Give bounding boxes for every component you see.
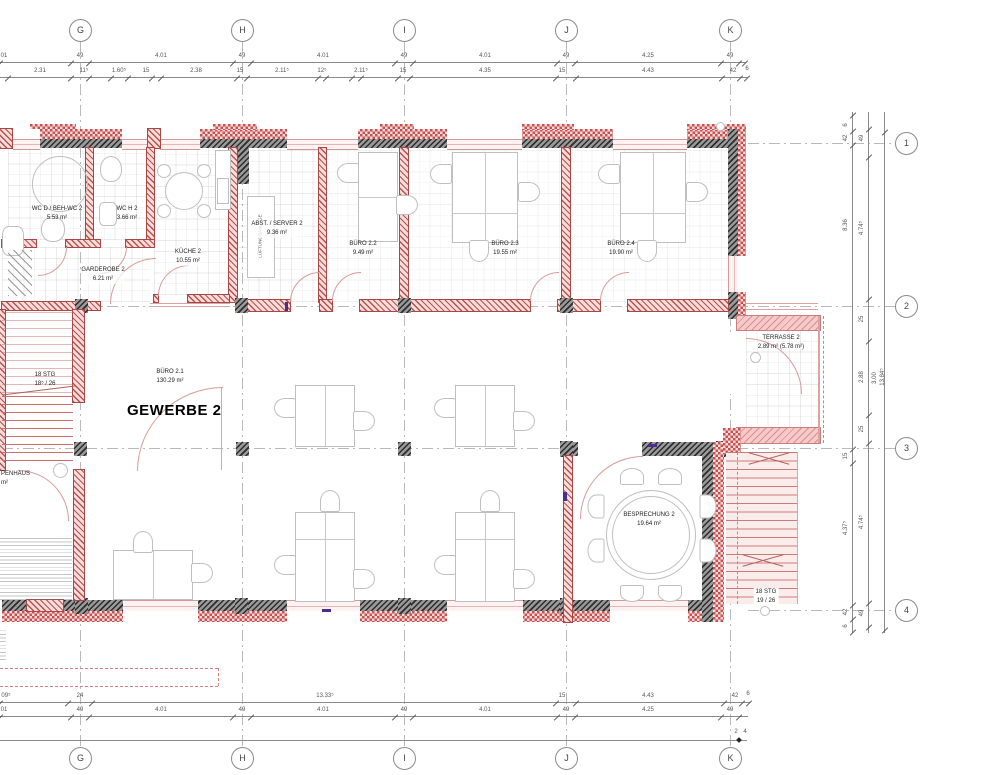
- dim-value: 4.43: [642, 693, 654, 699]
- canopy-outline: [0, 686, 218, 687]
- marker: [285, 302, 288, 311]
- door-opening: [578, 442, 642, 456]
- dim-value: 42: [732, 693, 739, 699]
- dim-value: 4.43: [642, 68, 654, 74]
- dim-value: 4.01: [155, 53, 167, 59]
- window: [447, 139, 522, 150]
- wall-wc-bottom: [126, 240, 154, 247]
- room-label-buero-2-3: BÜRO 2.3 19.55 m²: [491, 240, 518, 258]
- wall-terrasse-bottom: [737, 428, 820, 443]
- dim-value: 25: [859, 426, 865, 433]
- window: [613, 139, 687, 150]
- kitchen-chair: [197, 204, 211, 218]
- balcony-line: [746, 309, 818, 310]
- dim-value: 2.11⁵: [275, 68, 289, 74]
- desk: [113, 550, 193, 600]
- chair: [513, 411, 535, 431]
- room-area: 19.55 m²: [493, 250, 517, 256]
- room-name: WC D / BEH-WC 2: [32, 206, 82, 212]
- canopy-outline: [0, 668, 218, 669]
- dim-value: 49: [727, 53, 734, 59]
- stair-label-left: 18 STG 18⁵ / 26: [35, 371, 56, 389]
- dim-dot: [736, 737, 742, 743]
- grid-line-1: [748, 143, 896, 144]
- window: [123, 611, 198, 622]
- room-area: 9.36 m²: [267, 230, 287, 236]
- wall-buero23-buero24: [562, 148, 570, 302]
- column: [235, 598, 248, 614]
- room-name: PENHAUS: [1, 471, 30, 477]
- grid-bubble-1: 1: [895, 132, 918, 155]
- dim-value: 49: [563, 53, 570, 59]
- terrasse-edge: [818, 316, 820, 443]
- room-area: 19.64 m²: [637, 521, 661, 527]
- kitchen-sink: [217, 178, 229, 204]
- room-label-buero-2-4: BÜRO 2.4 19.90 m²: [607, 240, 634, 258]
- wall-wcd-wch: [86, 148, 93, 242]
- window: [122, 129, 148, 139]
- room-area: 6.21 m²: [93, 276, 113, 282]
- dim-value: 6: [746, 691, 749, 697]
- marker: [322, 609, 331, 612]
- dim-value: 15: [843, 453, 849, 460]
- room-area: 19.90 m²: [609, 250, 633, 256]
- room-name: TERRASSE 2: [762, 335, 799, 341]
- kitchen-table: [165, 172, 203, 210]
- dim-line-right-inner: [868, 112, 869, 633]
- grid-bubble-I-bottom: I: [393, 747, 416, 770]
- window: [122, 139, 148, 150]
- chair: [686, 182, 708, 202]
- chair: [620, 585, 644, 602]
- wall-terrasse-top: [737, 316, 820, 330]
- wall-buero22-buero23: [400, 148, 408, 302]
- window: [160, 129, 200, 139]
- chair: [620, 468, 644, 485]
- dim-value: 24: [77, 693, 84, 699]
- room-area: 130.29 m²: [156, 378, 183, 384]
- room-area: 5.53 m²: [47, 215, 67, 221]
- room-label-besprechung: BESPRECHUNG 2 19.64 m²: [623, 511, 674, 529]
- wall-abst-buero22: [319, 148, 326, 302]
- marker: [563, 492, 567, 501]
- dim-line-bottom-3: [0, 740, 747, 741]
- desk: [295, 512, 355, 602]
- drain-marker: [750, 352, 761, 363]
- grid-bubble-J-bottom: J: [555, 747, 578, 770]
- coat-hooks: [8, 250, 32, 296]
- column: [560, 441, 573, 457]
- chair: [469, 240, 489, 262]
- dim-value: 15: [559, 68, 566, 74]
- chair: [396, 195, 418, 215]
- room-label-wc-h: WC H 2 3.66 m²: [117, 205, 138, 223]
- window: [613, 129, 687, 139]
- chair: [337, 163, 359, 183]
- desk: [620, 152, 686, 243]
- chair: [588, 539, 605, 563]
- column: [75, 598, 88, 614]
- grid-line-4: [748, 610, 896, 611]
- chair: [133, 531, 153, 553]
- door-leaf: [221, 387, 222, 470]
- dim-value: 12⁵: [317, 68, 326, 74]
- dim-line-top-2: [0, 77, 748, 78]
- chair: [274, 398, 296, 418]
- column: [560, 298, 573, 313]
- dim-line-right-outer: [852, 112, 853, 633]
- dim-value: 4.01: [479, 707, 491, 713]
- dim-value: 49: [859, 610, 865, 617]
- chair: [588, 495, 605, 519]
- column-round: [53, 463, 68, 478]
- dim-value: 13.84⁵: [880, 368, 886, 386]
- room-label-gewerbe: GEWERBE 2: [127, 402, 222, 419]
- marker: [648, 444, 657, 447]
- stair-treads-lower: [2, 396, 73, 468]
- dim-value: 49: [563, 707, 570, 713]
- wall-axis2: [320, 300, 332, 311]
- wall-pier: [522, 124, 574, 130]
- dim-value: 49: [239, 707, 246, 713]
- room-name: KÜCHE 2: [175, 249, 201, 255]
- chair: [598, 164, 620, 184]
- room-label-buero-2-2: BÜRO 2.2 9.49 m²: [349, 240, 376, 258]
- dim-value: 4.25: [642, 707, 654, 713]
- wall-pier-brick: [0, 129, 12, 148]
- kitchen-chair: [197, 164, 211, 178]
- dim-value: 2.11⁵: [354, 68, 368, 74]
- stair-marker: [760, 606, 770, 616]
- desk: [455, 512, 515, 602]
- dim-value: 4.01: [479, 53, 491, 59]
- dim-value: 42: [843, 609, 849, 616]
- meeting-table-inner: [612, 496, 690, 574]
- window: [738, 256, 746, 292]
- column: [235, 298, 248, 313]
- chair: [320, 490, 340, 512]
- dim-value: 6: [843, 123, 849, 126]
- chair: [480, 490, 500, 512]
- dim-value: 4.74⁵: [859, 515, 865, 529]
- dim-value: 4.01: [155, 707, 167, 713]
- stair-ratio: 18⁵ / 26: [35, 381, 56, 387]
- window: [447, 611, 523, 622]
- stair-steps: 18 STG: [35, 372, 56, 378]
- wall-wch-kueche: [147, 148, 154, 242]
- stair-edge: [797, 452, 798, 604]
- room-label-abstellraum: ABST. / SERVER 2 9.36 m²: [251, 220, 302, 238]
- door-arc-entrance: [137, 387, 223, 471]
- dim-line-bottom-2: [0, 716, 748, 717]
- room-area: 3.66 m²: [117, 215, 137, 221]
- room-name: ABST. / SERVER 2: [251, 221, 302, 227]
- grid-bubble-K-top: K: [719, 19, 742, 42]
- deck-strip: [0, 630, 6, 660]
- room-area: 2.89 m² (5.78 m²): [758, 344, 804, 350]
- dim-value: 49: [727, 707, 734, 713]
- dim-value: 13.33⁵: [316, 693, 334, 699]
- column: [74, 442, 87, 456]
- wall-corner-block: [723, 428, 741, 454]
- wall-pier: [213, 124, 257, 130]
- dim-value: 4.74⁵: [859, 221, 865, 235]
- window: [287, 611, 360, 622]
- dim-value: 49: [77, 53, 84, 59]
- room-label-kueche: KÜCHE 2 10.55 m²: [175, 248, 201, 266]
- dim-value: 49: [401, 707, 408, 713]
- desk: [455, 385, 515, 447]
- room-name: GARDEROBE 2: [81, 267, 124, 273]
- room-name: BÜRO 2.2: [349, 241, 376, 247]
- chair: [353, 569, 375, 589]
- sink: [99, 202, 117, 226]
- chair: [430, 164, 452, 184]
- dim-value: 2.31: [34, 68, 46, 74]
- window: [610, 611, 688, 622]
- terrasse-edge-dashed: [823, 316, 824, 443]
- chair: [191, 563, 213, 583]
- window: [287, 129, 358, 139]
- desk: [295, 385, 355, 447]
- dim-value: 15: [559, 693, 566, 699]
- room-label-terrasse: TERRASSE 2 2.89 m² (5.78 m²): [758, 334, 804, 352]
- chair: [658, 468, 682, 485]
- dim-value: 49: [77, 707, 84, 713]
- grid-bubble-H-bottom: H: [231, 747, 254, 770]
- dim-value: 3.00: [872, 372, 878, 384]
- chair: [434, 398, 456, 418]
- dim-value: 6: [843, 624, 849, 627]
- room-name: BÜRO 2.3: [491, 241, 518, 247]
- room-label-buero-2-1: BÜRO 2.1 130.29 m²: [156, 368, 183, 386]
- grid-bubble-J-top: J: [555, 19, 578, 42]
- partition-glass: [150, 303, 230, 304]
- dim-value: 4.01: [317, 53, 329, 59]
- dim-value: 4.01: [317, 707, 329, 713]
- room-name: BESPRECHUNG 2: [623, 512, 674, 518]
- stair-rail-dashed: [737, 452, 738, 604]
- grid-bubble-3: 3: [895, 437, 918, 460]
- balcony-line: [746, 303, 818, 304]
- dim-value: 01: [1, 53, 8, 59]
- chair: [513, 569, 535, 589]
- wall-bottom-brick-piece: [27, 600, 63, 611]
- chair: [518, 182, 540, 202]
- column: [398, 298, 411, 313]
- dim-value: 8.36: [843, 219, 849, 231]
- room-area: m²: [1, 480, 8, 486]
- column: [398, 442, 411, 456]
- dim-value: 42: [730, 68, 737, 74]
- dim-value: 49: [859, 135, 865, 142]
- wall-kueche-bottom: [188, 295, 229, 302]
- dim-value: 49: [401, 53, 408, 59]
- window: [160, 139, 200, 150]
- deck-floor: [0, 535, 72, 600]
- dim-value: 2.88: [859, 371, 865, 383]
- dim-value: 01: [1, 707, 8, 713]
- window: [13, 129, 40, 139]
- room-name: WC H 2: [117, 206, 138, 212]
- room-area: 10.55 m²: [176, 258, 200, 264]
- column: [398, 598, 411, 614]
- dim-value: 2: [734, 729, 737, 735]
- wall-besprechung-left: [564, 456, 572, 622]
- grid-bubble-I-top: I: [393, 19, 416, 42]
- wall-deck-gewerbe: [74, 470, 84, 600]
- grid-bubble-G-top: G: [69, 19, 92, 42]
- dim-value: 25: [859, 316, 865, 323]
- stair-label-right: 18 STG 19 / 26: [754, 588, 779, 606]
- wall-stair-shaft: [73, 310, 84, 402]
- door-opening: [728, 336, 746, 394]
- canopy-outline: [218, 668, 219, 686]
- floor-plan: 01 49 4.01 49 4.01 49 4.01 49 4.25 49 2.…: [0, 0, 1000, 775]
- chair: [274, 555, 296, 575]
- dim-value: 4.25: [642, 53, 654, 59]
- dim-value: 1.60⁵: [112, 68, 126, 74]
- window: [13, 139, 40, 150]
- toilet: [100, 156, 122, 182]
- wall-besprechung-right-insulation: [713, 442, 724, 622]
- dim-value: 2.38: [190, 68, 202, 74]
- dim-value: 11⁵: [80, 68, 89, 74]
- stair-ratio: 19 / 26: [757, 598, 775, 604]
- dim-value: 15: [143, 68, 150, 74]
- dim-value: 15: [400, 68, 407, 74]
- dim-value: 6: [745, 66, 748, 72]
- room-area: 9.49 m²: [353, 250, 373, 256]
- stair-steps: 18 STG: [756, 589, 777, 595]
- dim-value: 42: [843, 135, 849, 142]
- chair: [658, 585, 682, 602]
- chair: [700, 495, 717, 519]
- wall-axis2: [360, 300, 530, 311]
- desk: [452, 152, 518, 243]
- chair: [434, 555, 456, 575]
- dim-value: 15: [237, 68, 244, 74]
- dim-value: 4: [743, 729, 746, 735]
- grid-bubble-H-top: H: [231, 19, 254, 42]
- grid-bubble-G-bottom: G: [69, 747, 92, 770]
- window: [447, 129, 522, 139]
- wall-besprechung-right-concrete: [702, 442, 713, 622]
- kitchen-chair: [157, 204, 171, 218]
- wall-wc-bottom: [66, 240, 100, 247]
- chair: [637, 240, 657, 262]
- wall-pier: [380, 124, 414, 130]
- chair: [353, 411, 375, 431]
- room-label-wc-d: WC D / BEH-WC 2 5.53 m²: [32, 205, 82, 223]
- chair: [700, 539, 717, 563]
- dim-line-bottom-1: [0, 702, 750, 703]
- partition-glass: [150, 306, 230, 307]
- corner-marker: [716, 122, 725, 131]
- room-label-garderobe: GARDEROBE 2 6.21 m²: [81, 266, 124, 284]
- wall-pier-brick: [148, 129, 160, 148]
- dim-value: 49: [239, 53, 246, 59]
- room-label-treppenhaus: PENHAUS m²: [1, 470, 30, 488]
- dim-value: 4.35: [479, 68, 491, 74]
- room-name: BÜRO 2.4: [607, 241, 634, 247]
- kitchen-chair: [157, 164, 171, 178]
- dim-line-top-1: [0, 62, 746, 63]
- grid-bubble-4: 4: [895, 599, 918, 622]
- wall-axis2: [628, 300, 728, 311]
- grid-line-3: [2, 448, 896, 449]
- grid-bubble-K-bottom: K: [719, 747, 742, 770]
- desk: [358, 152, 398, 242]
- room-name: BÜRO 2.1: [156, 369, 183, 375]
- dim-value: 09⁵: [1, 693, 10, 699]
- grid-bubble-2: 2: [895, 295, 918, 318]
- dim-value: 4.37⁵: [843, 521, 849, 535]
- wheelchair-turning-circle: [32, 156, 88, 212]
- column: [236, 442, 249, 456]
